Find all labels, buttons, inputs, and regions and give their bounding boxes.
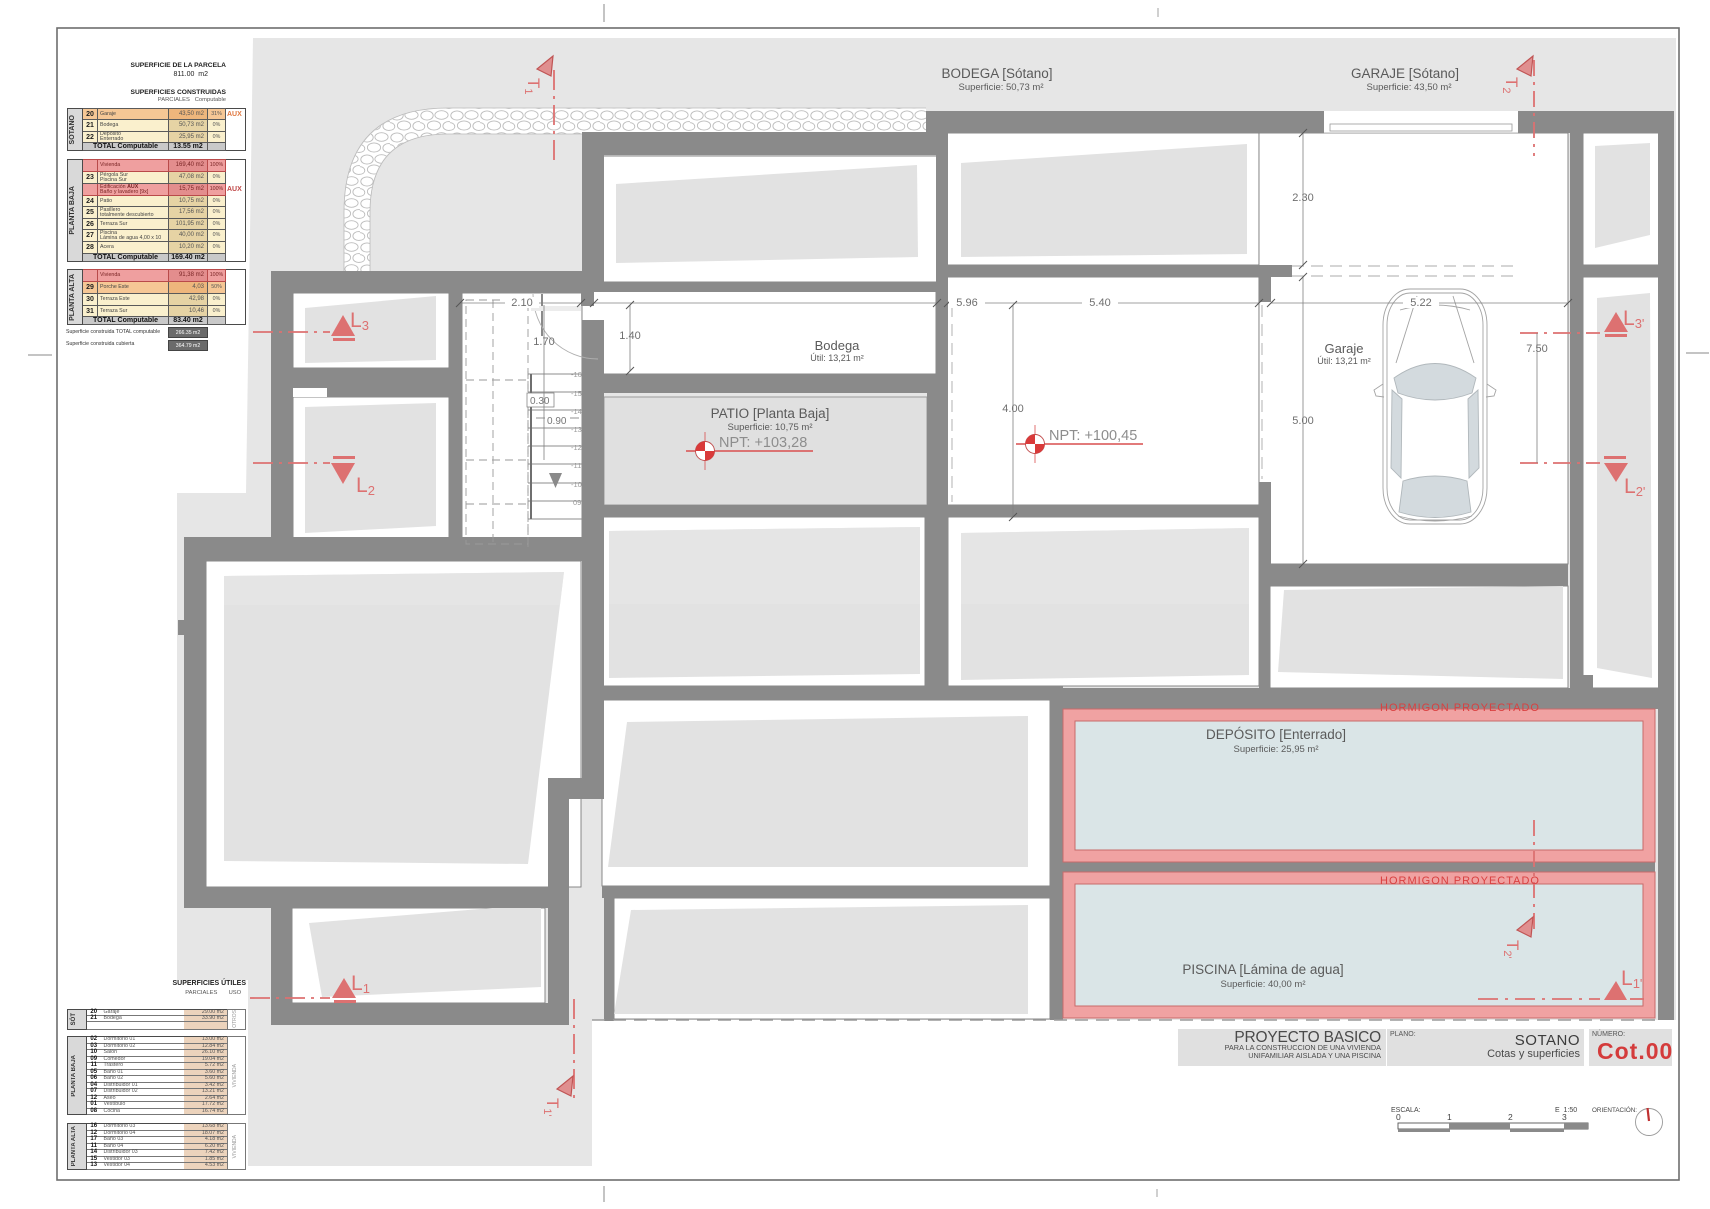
svg-text:Útil: 13,21 m²: Útil: 13,21 m²: [810, 353, 864, 363]
svg-text:7.50: 7.50: [1526, 343, 1547, 355]
svg-text:-11: -11: [571, 461, 581, 470]
svg-text:GARAJE [Sótano]: GARAJE [Sótano]: [1351, 66, 1459, 81]
svg-text:0: 0: [1396, 1112, 1401, 1122]
svg-text:Superficie: 10,75 m²: Superficie: 10,75 m²: [727, 422, 812, 433]
svg-text:2.10: 2.10: [511, 297, 532, 309]
svg-text:5.40: 5.40: [1089, 297, 1110, 309]
svg-text:Útil: 13,21 m²: Útil: 13,21 m²: [1317, 356, 1371, 366]
svg-text:-15: -15: [571, 389, 582, 398]
svg-text:5.96: 5.96: [956, 297, 977, 309]
svg-text:HORMIGON PROYECTADO: HORMIGON PROYECTADO: [1380, 875, 1540, 887]
svg-text:Superficie: 40,00 m²: Superficie: 40,00 m²: [1220, 979, 1305, 990]
svg-text:0.30: 0.30: [530, 396, 550, 407]
svg-text:HORMIGON PROYECTADO: HORMIGON PROYECTADO: [1380, 702, 1540, 714]
svg-text:5.22: 5.22: [1410, 297, 1431, 309]
svg-text:09: 09: [573, 498, 581, 507]
svg-text:-12: -12: [571, 443, 582, 452]
svg-text:-16: -16: [571, 370, 582, 379]
svg-text:2: 2: [1508, 1112, 1513, 1122]
svg-text:Superficie: 50,73 m²: Superficie: 50,73 m²: [958, 82, 1043, 93]
svg-text:-14: -14: [571, 407, 582, 416]
svg-text:PATIO [Planta Baja]: PATIO [Planta Baja]: [711, 406, 830, 421]
svg-text:Garaje: Garaje: [1324, 341, 1363, 356]
svg-text:3: 3: [1562, 1112, 1567, 1122]
svg-text:-13: -13: [571, 425, 582, 434]
svg-text:Superficie: 25,95 m²: Superficie: 25,95 m²: [1233, 744, 1318, 755]
svg-text:BODEGA [Sótano]: BODEGA [Sótano]: [941, 66, 1052, 81]
svg-text:PISCINA [Lámina de agua]: PISCINA [Lámina de agua]: [1182, 962, 1343, 977]
svg-text:NPT: +103,28: NPT: +103,28: [719, 435, 807, 451]
svg-text:-10: -10: [571, 480, 582, 489]
svg-text:NPT: +100,45: NPT: +100,45: [1049, 428, 1137, 444]
svg-text:1: 1: [1447, 1112, 1452, 1122]
svg-text:1.70: 1.70: [533, 336, 554, 348]
svg-text:2.30: 2.30: [1292, 192, 1313, 204]
svg-text:Bodega: Bodega: [815, 338, 861, 353]
svg-text:1.40: 1.40: [619, 330, 640, 342]
svg-text:5.00: 5.00: [1292, 415, 1313, 427]
svg-text:Superficie: 43,50 m²: Superficie: 43,50 m²: [1366, 82, 1451, 93]
svg-text:DEPÓSITO [Enterrado]: DEPÓSITO [Enterrado]: [1206, 727, 1346, 742]
svg-text:4.00: 4.00: [1002, 403, 1023, 415]
svg-text:0.90: 0.90: [547, 416, 567, 427]
